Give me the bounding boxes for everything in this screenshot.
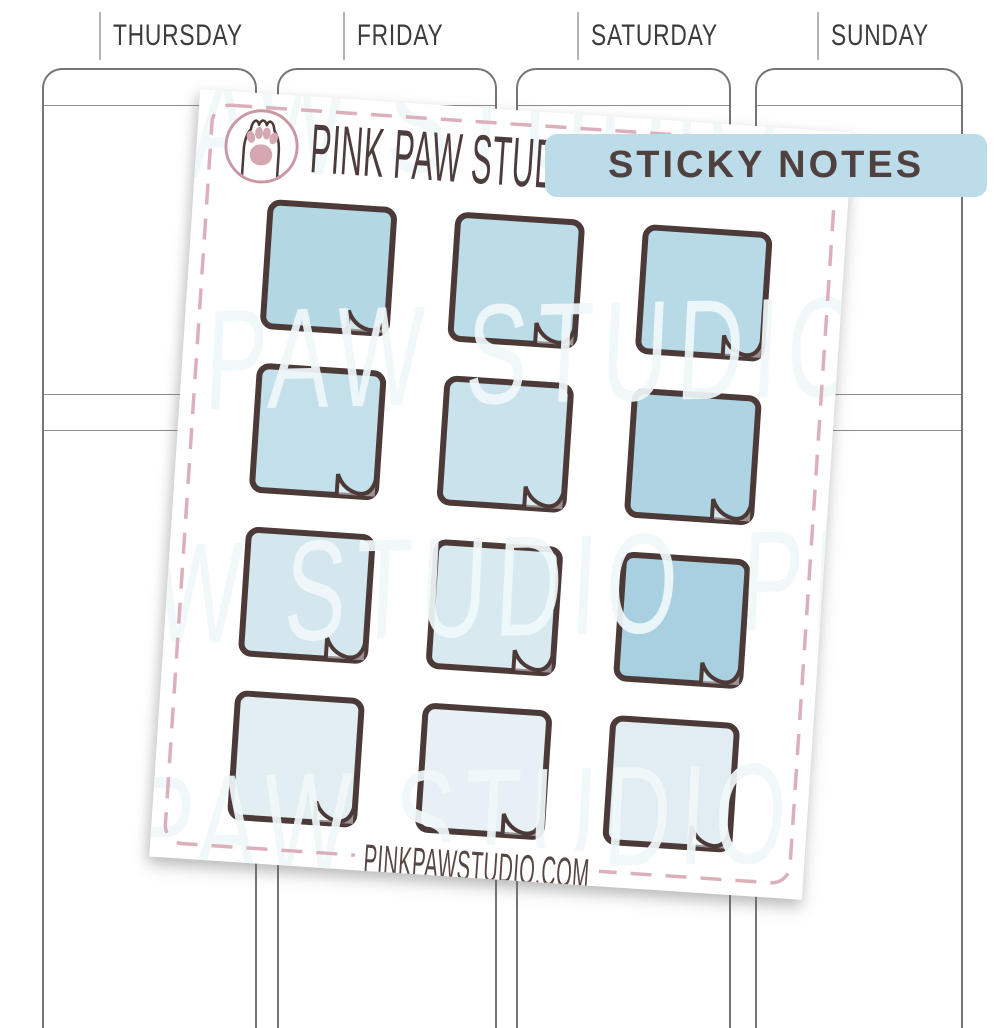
sticker-sheet: PINK PAW STUDIO PINK PAW STUDIO PINK PAW… xyxy=(149,89,853,900)
planner-row-line xyxy=(757,105,961,106)
day-tick xyxy=(577,12,579,60)
day-tick xyxy=(817,12,819,60)
sticky-note-sticker xyxy=(629,219,778,368)
day-header-saturday: SATURDAY xyxy=(577,10,758,62)
sticky-note-sticker xyxy=(409,697,558,846)
sticky-note-sticker xyxy=(254,194,403,343)
sticky-notes-banner: STICKY NOTES xyxy=(545,134,987,197)
paw-logo xyxy=(220,105,303,193)
day-header-friday: FRIDAY xyxy=(343,10,471,62)
sticky-note-sticker xyxy=(243,357,392,506)
day-header-sunday: SUNDAY xyxy=(817,10,960,62)
sticky-note-sticker xyxy=(232,521,381,670)
day-label: SUNDAY xyxy=(831,19,929,53)
day-label: THURSDAY xyxy=(113,19,243,53)
day-header-thursday: THURSDAY xyxy=(99,10,284,62)
day-tick xyxy=(99,12,101,60)
sticky-note-sticker xyxy=(618,382,767,531)
banner-label: STICKY NOTES xyxy=(608,144,924,187)
sticky-note-sticker xyxy=(597,709,746,858)
product-mockup: { "planner": { "days": ["THURSDAY", "FRI… xyxy=(0,0,1000,1000)
sticky-note-sticker xyxy=(420,533,569,682)
paw-icon xyxy=(220,105,303,188)
day-tick xyxy=(343,12,345,60)
sticky-note-sticker xyxy=(608,546,757,695)
planner-row-line xyxy=(518,105,729,106)
day-label: SATURDAY xyxy=(591,19,718,53)
sticky-note-sticker xyxy=(431,370,580,519)
sticky-note-sticker xyxy=(222,685,371,834)
notes-grid xyxy=(149,89,853,900)
day-label: FRIDAY xyxy=(357,19,443,53)
sticky-note-sticker xyxy=(442,206,591,355)
